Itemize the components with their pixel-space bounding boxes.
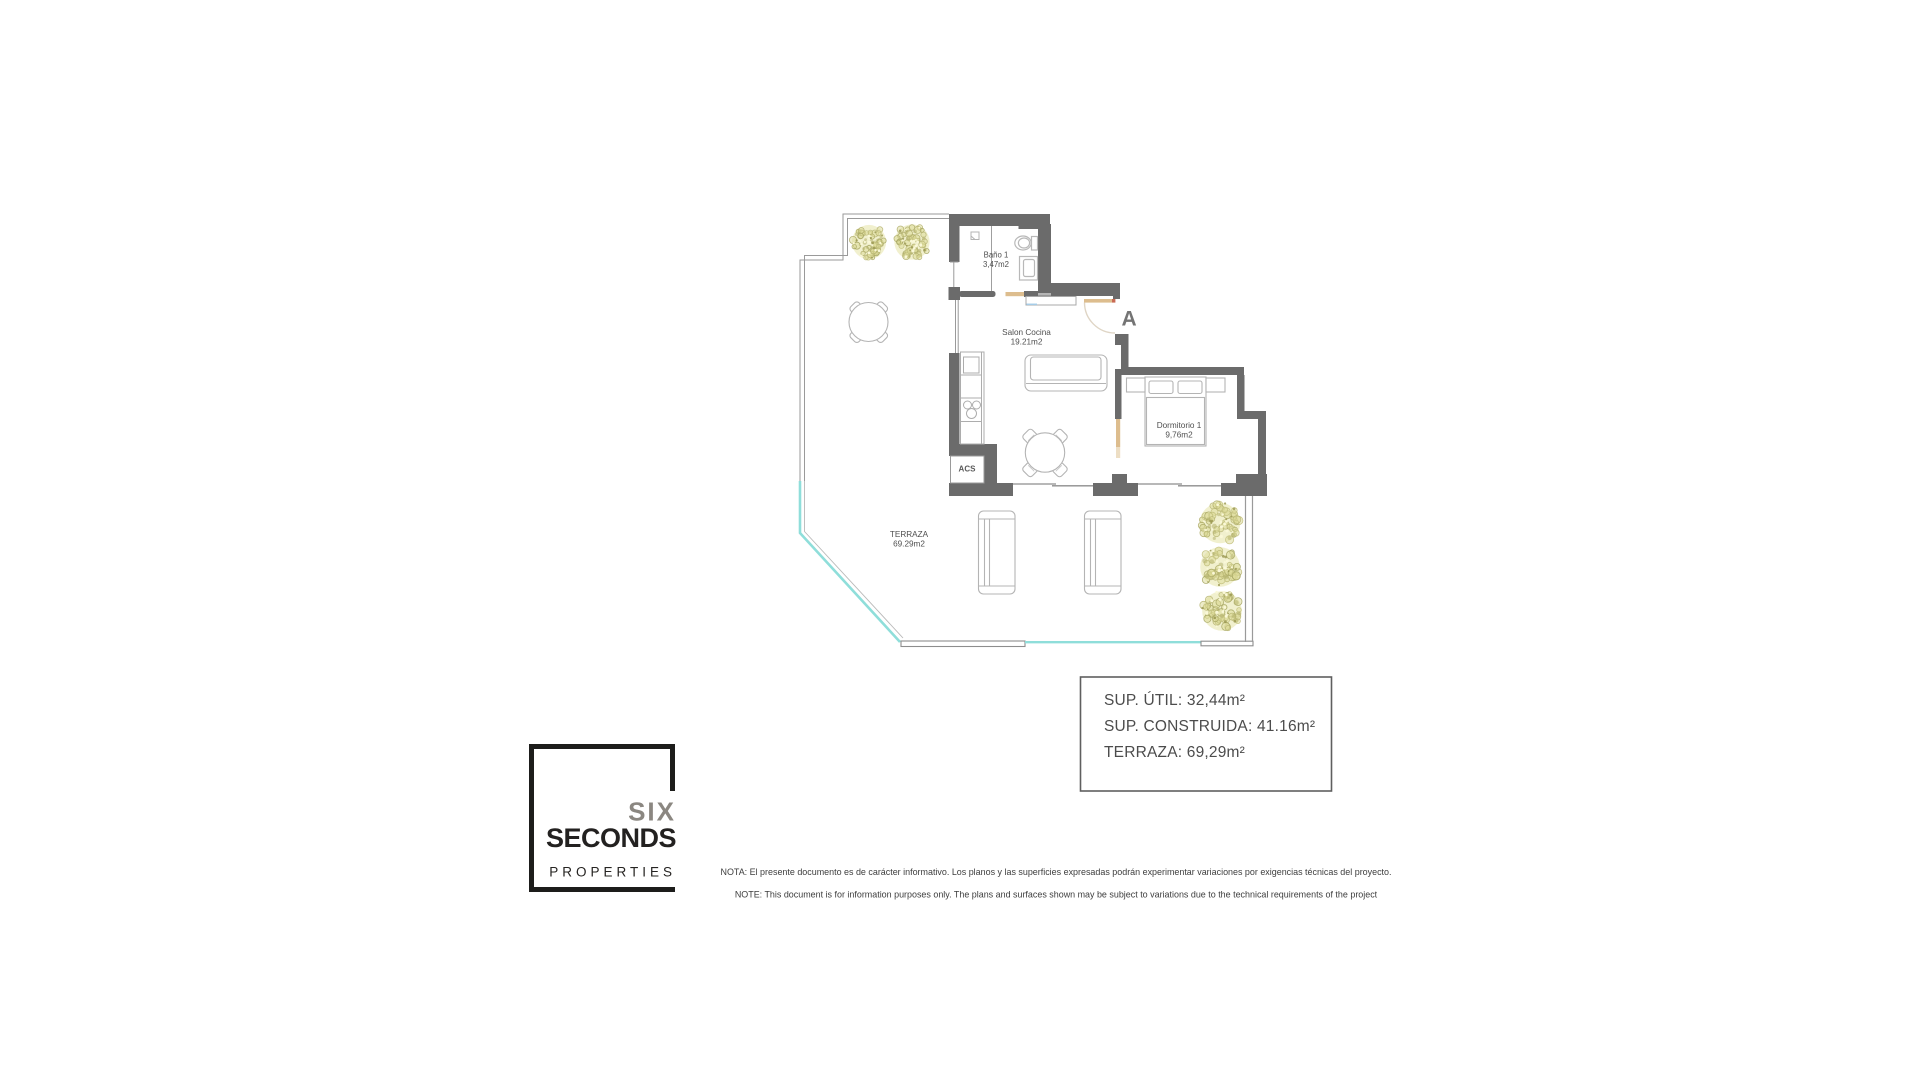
svg-text:SUP. CONSTRUIDA: 41.16m²: SUP. CONSTRUIDA: 41.16m² [1104,718,1315,735]
svg-text:19.21m2: 19.21m2 [1011,338,1043,347]
svg-text:3,47m2: 3,47m2 [983,260,1009,269]
svg-text:SECONDS: SECONDS [546,823,676,853]
svg-text:Dormitorio 1: Dormitorio 1 [1157,421,1202,430]
svg-text:Salon Cocina: Salon Cocina [1002,328,1051,337]
svg-text:PROPERTIES: PROPERTIES [549,865,676,880]
svg-text:SUP. ÚTIL: 32,44m²: SUP. ÚTIL: 32,44m² [1104,692,1245,709]
svg-text:69.29m2: 69.29m2 [893,540,925,549]
svg-text:ACS: ACS [959,465,977,474]
svg-text:A: A [1122,308,1137,331]
svg-text:NOTE: This document is for inf: NOTE: This document is for information p… [735,890,1378,900]
svg-text:Baño 1: Baño 1 [984,251,1009,260]
svg-text:9,76m2: 9,76m2 [1165,431,1193,440]
svg-text:TERRAZA: TERRAZA [890,530,929,539]
svg-text:SIX: SIX [628,797,676,827]
svg-text:TERRAZA: 69,29m²: TERRAZA: 69,29m² [1104,744,1245,761]
svg-text:NOTA: El presente documento es: NOTA: El presente documento es de caráct… [721,867,1392,877]
